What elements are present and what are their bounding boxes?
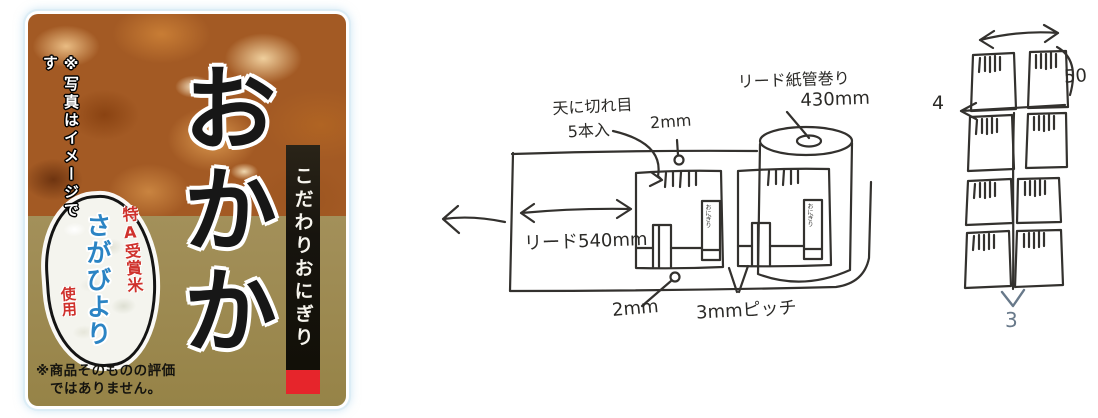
top-dim-label: 2mm — [649, 111, 692, 133]
product-name-text: おかか — [160, 60, 268, 396]
package-sketch-2 — [738, 169, 831, 267]
grid-ticks-r3c1 — [974, 182, 995, 198]
height-dim-label: 50 — [1063, 65, 1087, 88]
grid-ticks-r2c1 — [976, 118, 997, 134]
pitch-dim-label: 3mmピッチ — [695, 293, 797, 324]
row-gap-dim-label: 4 — [932, 92, 944, 114]
core-note-leader — [787, 112, 809, 138]
bottom-dim-marker — [671, 273, 680, 282]
core-note: リード紙管巻り 430mm — [737, 64, 870, 114]
grid-sheet-sketch — [961, 25, 1073, 306]
package-1-fold-column — [653, 225, 671, 267]
disclaimer-line1: ※商品そのものの評価 — [36, 363, 176, 381]
cut-note-line2: 5本入 — [553, 115, 634, 143]
grid-rect-r1c1 — [971, 53, 1016, 111]
grid-rect-r2c2 — [1026, 113, 1067, 168]
grid-ticks-r3c2 — [1025, 180, 1045, 196]
grid-ticks-r2c2 — [1034, 115, 1054, 131]
cut-note: 天に切れ目 5本入 — [552, 91, 634, 143]
grid-ticks-r4c2 — [1024, 232, 1044, 248]
grid-ticks-r4c1 — [973, 234, 994, 250]
package-2-cut-ticks — [768, 170, 798, 185]
scanned-spec-sheet: ※写真はイメージです おかか こだわりおにぎり 特A受賞米 さがびより 使用 ※… — [0, 0, 1098, 418]
package-2-fold-column — [752, 223, 770, 266]
col-gap-arrowhead — [1002, 290, 1024, 306]
red-accent-block — [286, 370, 320, 394]
disclaimer-line2: ではありません。 — [36, 381, 176, 399]
grid-ticks-r1c2 — [1036, 53, 1056, 69]
grid-center-line — [1013, 113, 1014, 289]
package-1-mini-label-text: おにぎり — [704, 204, 710, 258]
brand-text: さがびより — [79, 212, 115, 347]
grid-ticks-r1c1 — [979, 56, 1000, 72]
bottom-dim-label: 2mm — [611, 296, 659, 321]
lead-dim-arrow — [521, 200, 631, 222]
side-band: こだわりおにぎり — [286, 145, 320, 370]
grid-rect-r1c2 — [1028, 51, 1068, 108]
top-dim-leader — [677, 140, 678, 155]
lead-dim-label: リード540mm — [524, 225, 648, 255]
roll-top-ellipse — [760, 127, 852, 155]
top-dim-marker — [675, 156, 684, 165]
feed-direction-arrow — [443, 206, 505, 233]
cut-note-line1: 天に切れ目 — [552, 91, 633, 119]
side-band-text: こだわりおにぎり — [290, 166, 317, 350]
col-gap-dim-label: 3 — [1005, 308, 1018, 332]
package-1-cut-ticks — [665, 171, 696, 187]
disclaimer-text: ※商品そのものの評価 ではありません。 — [36, 363, 176, 398]
photo-note-vertical-text: ※写真はイメージです — [40, 55, 82, 223]
use-text: 使用 — [57, 286, 80, 317]
package-2-mini-label-text: おにぎり — [806, 203, 812, 257]
grid-width-arrow — [980, 25, 1058, 48]
